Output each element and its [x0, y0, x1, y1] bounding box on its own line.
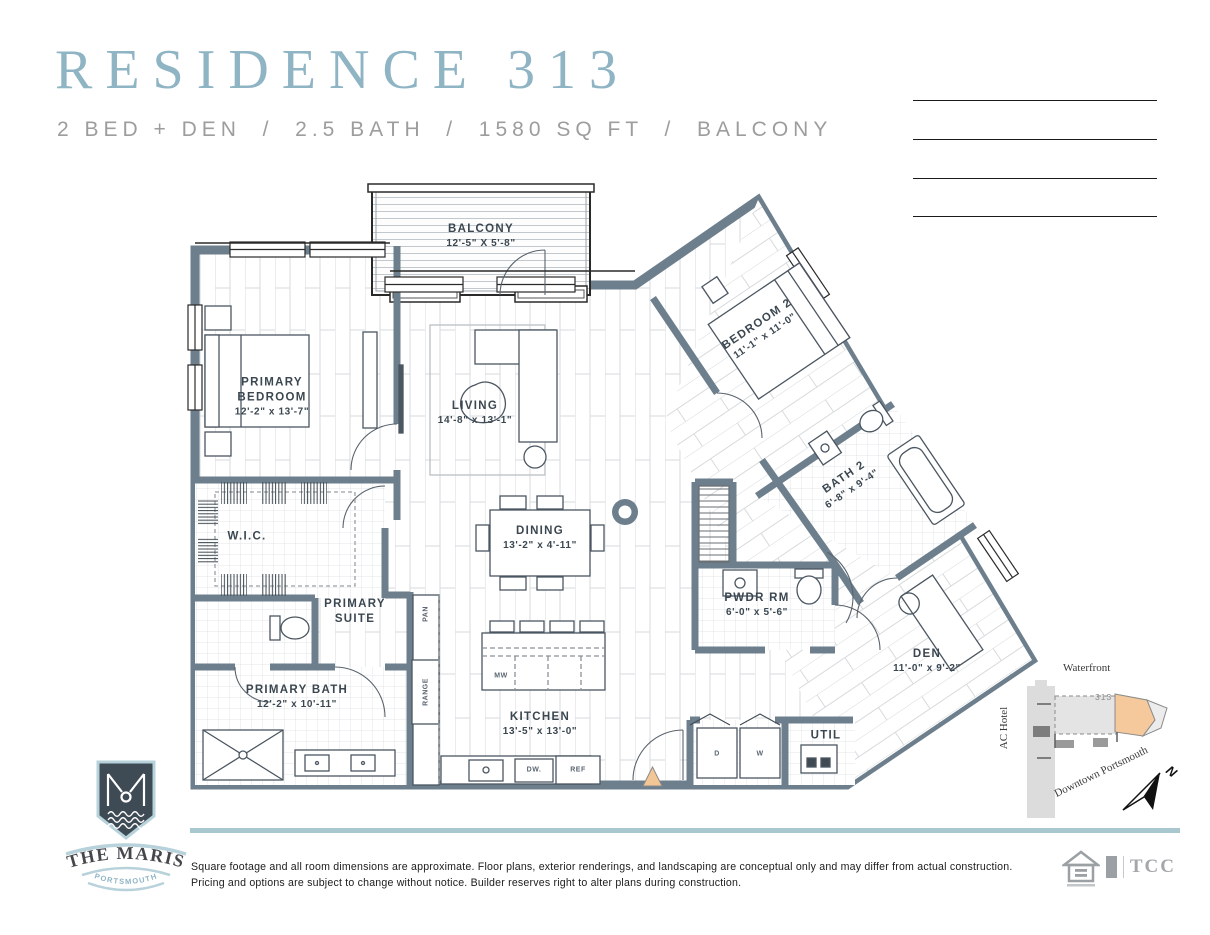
- room-name: W.I.C.: [227, 530, 266, 545]
- note-line: [913, 100, 1157, 101]
- location-map: N Waterfront AC Hotel 313 Downtown Ports…: [995, 648, 1200, 828]
- room-label-dining: DINING 13'-2" x 4'-11": [503, 524, 577, 552]
- dryer-label: D: [714, 751, 720, 758]
- room-label-kitchen: KITCHEN 13'-5" x 13'-0": [503, 710, 577, 738]
- microwave-label: MW: [494, 673, 507, 680]
- room-label-wic: W.I.C.: [227, 530, 266, 545]
- note-line: [913, 178, 1157, 179]
- logo-waves: [108, 812, 144, 829]
- room-dims: 13'-5" x 13'-0": [503, 725, 577, 738]
- room-dims: 12'-2" x 10'-11": [246, 698, 348, 711]
- pantry-label: PAN: [423, 606, 430, 622]
- footer-divider: [190, 828, 1180, 833]
- room-label-den: DEN 11'-0" x 9'-2": [893, 647, 961, 675]
- tcc-logo-mark: [1106, 856, 1117, 878]
- room-dims: 12'-5" X 5'-8": [446, 237, 515, 250]
- room-name: LIVING: [438, 399, 512, 414]
- room-name: PWDR RM: [724, 591, 789, 606]
- maris-logo-drawing: THE MARIS PORTSMOUTH: [58, 756, 188, 896]
- room-name: PRIMARY BATH: [246, 683, 348, 698]
- room-name: PRIMARY SUITE: [315, 597, 395, 627]
- room-name: PRIMARY BEDROOM: [213, 376, 331, 406]
- waterfront-label: Waterfront: [1063, 662, 1110, 674]
- room-dims: 11'-0" x 9'-2": [893, 662, 961, 675]
- washer-label: W: [756, 751, 763, 758]
- equal-housing-icon: [1062, 848, 1100, 890]
- logo-arc-mid: [82, 868, 170, 875]
- room-dims: 14'-8" x 13'-1": [438, 414, 512, 427]
- room-label-primary-bath: PRIMARY BATH 12'-2" x 10'-11": [246, 683, 348, 711]
- range-label: RANGE: [423, 678, 430, 706]
- tcc-logo-divider: [1123, 856, 1124, 878]
- room-dims: 6'-0" x 5'-6": [724, 606, 789, 619]
- tcc-logo: TCC: [1106, 853, 1176, 881]
- floor-plan: BALCONY 12'-5" X 5'-8" PRIMARY BEDROOM 1…: [185, 180, 1040, 805]
- north-arrow-icon: N: [1123, 763, 1180, 810]
- maris-logo: THE MARIS PORTSMOUTH: [58, 756, 188, 896]
- page-title: RESIDENCE 313: [55, 38, 630, 102]
- north-label: N: [1163, 763, 1180, 781]
- tcc-logo-text: TCC: [1130, 856, 1176, 878]
- ac-hotel-label: AC Hotel: [998, 707, 1010, 749]
- room-label-living: LIVING 14'-8" x 13'-1": [438, 399, 512, 427]
- room-name: DEN: [893, 647, 961, 662]
- floor-plan-drawing: [185, 180, 1040, 805]
- room-label-primary-bedroom: PRIMARY BEDROOM 12'-2" x 13'-7": [213, 376, 331, 419]
- disclaimer-text: Square footage and all room dimensions a…: [191, 859, 1036, 892]
- logo-city-text: PORTSMOUTH: [93, 871, 158, 886]
- unit-number-label: 313: [1095, 692, 1112, 702]
- room-name: UTIL: [811, 729, 842, 744]
- room-label-util: UTIL: [811, 729, 842, 744]
- room-dims: 12'-2" x 13'-7": [213, 405, 331, 418]
- page-subtitle: 2 BED + DEN / 2.5 BATH / 1580 SQ FT / BA…: [57, 118, 832, 142]
- room-label-primary-suite: PRIMARY SUITE: [315, 597, 395, 627]
- note-line: [913, 139, 1157, 140]
- room-name: DINING: [503, 524, 577, 539]
- room-label-pwdr-rm: PWDR RM 6'-0" x 5'-6": [724, 591, 789, 619]
- dishwasher-label: DW.: [527, 767, 542, 774]
- room-label-balcony: BALCONY 12'-5" X 5'-8": [446, 222, 515, 250]
- svg-text:PORTSMOUTH: PORTSMOUTH: [93, 871, 158, 886]
- refrigerator-label: REF: [570, 767, 586, 774]
- room-name: BALCONY: [446, 222, 515, 237]
- room-name: KITCHEN: [503, 710, 577, 725]
- location-map-drawing: N: [995, 648, 1200, 828]
- room-dims: 13'-2" x 4'-11": [503, 539, 577, 552]
- disclaimer-line-2: subject to change without notice. Builde…: [307, 877, 741, 889]
